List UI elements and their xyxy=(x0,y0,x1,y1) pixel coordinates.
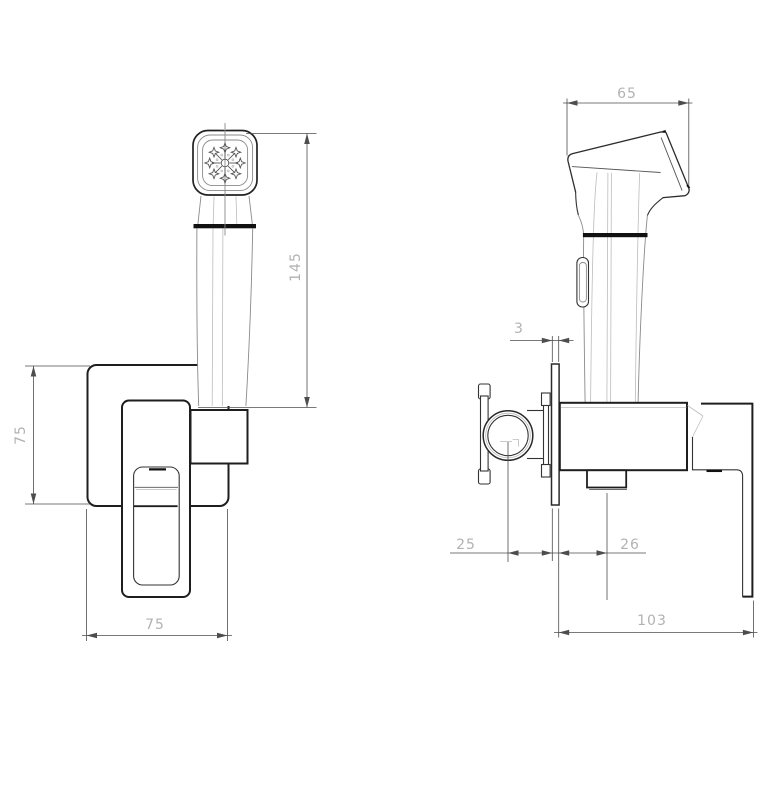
front-view xyxy=(25,123,317,641)
side-sprayer-hook-clip xyxy=(577,258,589,308)
dim-label-depth-103: 103 xyxy=(622,607,682,635)
dim-label-inlet-to-wall-25: 25 xyxy=(436,531,496,559)
dim-label-height-145: 145 xyxy=(282,237,310,297)
front-hand-sprayer xyxy=(193,123,257,406)
side-wall-plate xyxy=(552,364,560,505)
side-mounting-flange xyxy=(542,393,551,477)
front-lever-handle xyxy=(122,401,190,598)
side-outlet-block xyxy=(587,470,627,489)
side-hand-sprayer xyxy=(568,131,690,403)
side-sprayer-trim-band xyxy=(583,233,648,237)
technical-drawing-canvas: 145 75 75 65 3 25 26 103 xyxy=(0,0,771,800)
side-valve-body xyxy=(560,403,687,470)
dim-label-plate-height-75: 75 xyxy=(7,405,35,465)
dim-label-plate-thickness-3: 3 xyxy=(504,315,534,343)
dim-label-wall-to-outlet-26: 26 xyxy=(600,531,660,559)
dim-label-head-width-65: 65 xyxy=(597,80,657,108)
dim-label-plate-width-75: 75 xyxy=(125,611,185,639)
drawing-linework xyxy=(0,0,771,800)
front-connector-block xyxy=(191,410,248,464)
side-lever-handle xyxy=(688,403,753,597)
